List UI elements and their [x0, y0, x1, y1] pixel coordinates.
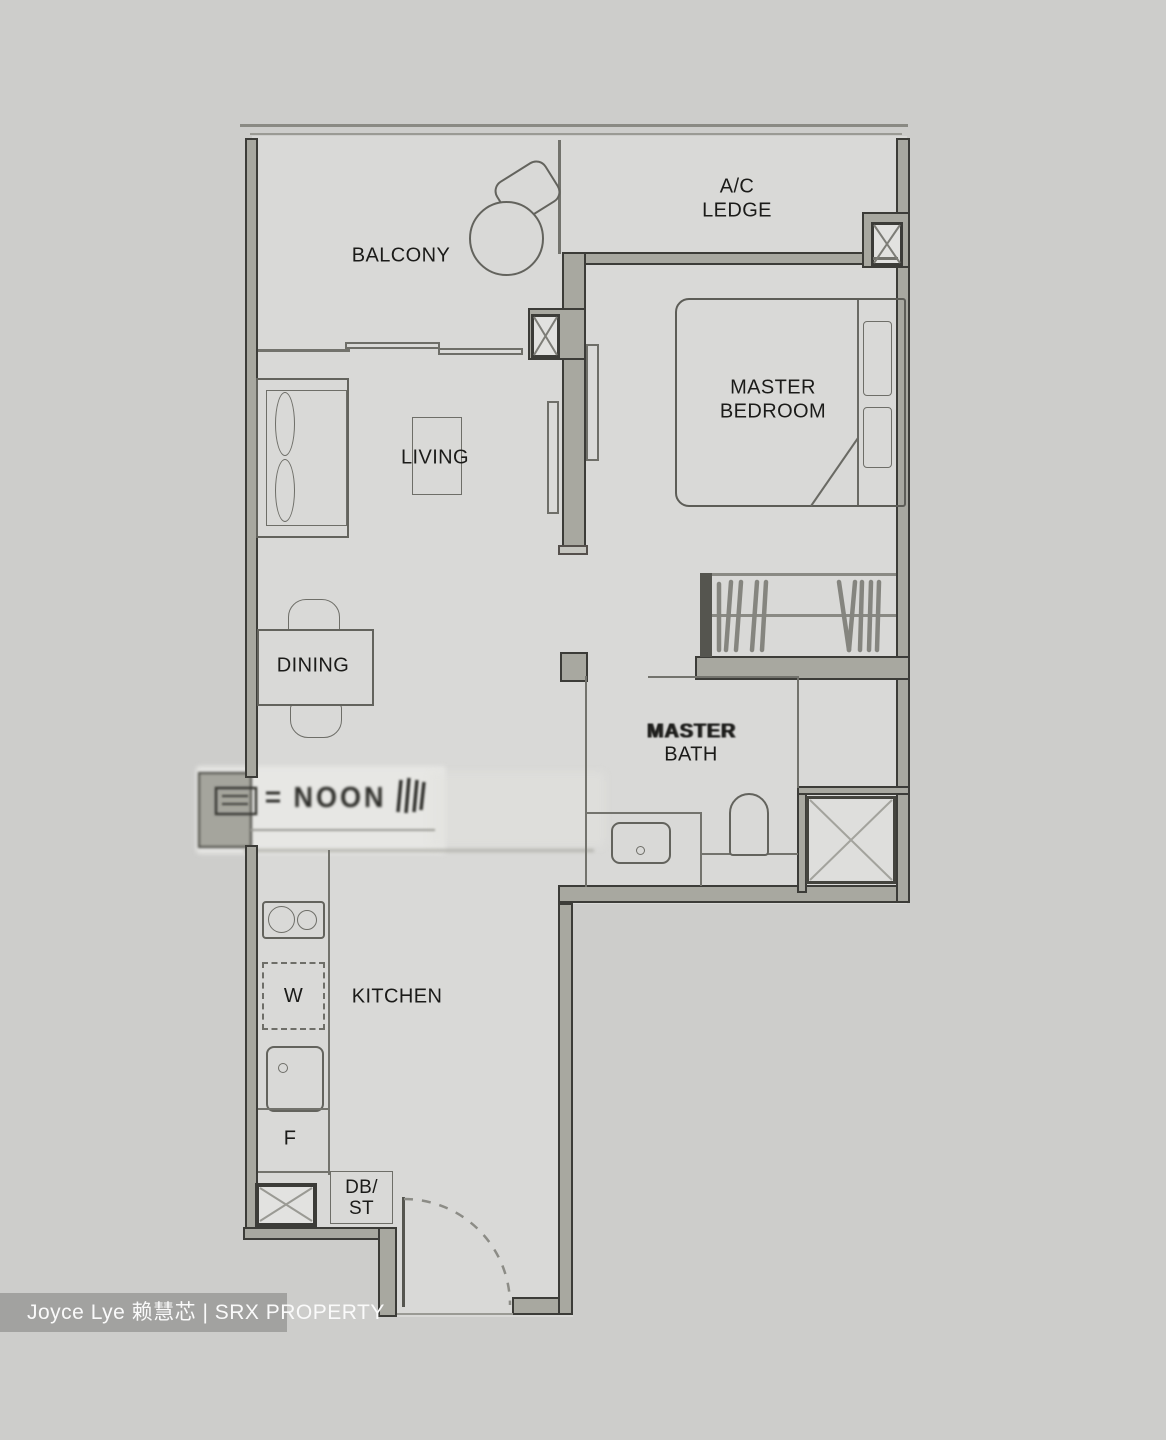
dining-label: DINING	[277, 655, 349, 678]
entry-threshold	[397, 1313, 513, 1315]
balcony-slider-1	[345, 342, 440, 349]
top-edge-outer	[240, 124, 908, 127]
ledge-wall-extension	[873, 257, 898, 260]
floor-plan: NOON	[0, 0, 1166, 1440]
bedroom-slider-left	[547, 401, 559, 514]
entry-door-leaf	[402, 1197, 405, 1307]
shaft-box-entry	[255, 1183, 317, 1227]
wardrobe-top-line	[712, 573, 896, 576]
smudge-line-1	[250, 829, 435, 831]
agent-watermark: Joyce Lye 赖慧芯 | SRX PROPERTY	[0, 1293, 287, 1332]
sofa-cushion-1	[275, 392, 295, 456]
vanity-drain	[636, 846, 645, 855]
wall-bedroom-west	[562, 252, 586, 547]
balcony-slider-2	[438, 348, 523, 355]
wall-left-lower	[245, 845, 258, 1240]
fridge-bottom-line	[258, 1171, 329, 1173]
balcony-label: BALCONY	[352, 245, 450, 268]
toilet	[729, 793, 769, 856]
top-edge-inner	[250, 133, 902, 135]
wardrobe-rail	[712, 614, 896, 617]
wall-bath-column	[560, 652, 588, 682]
shower-area	[806, 796, 896, 884]
kitchen-label: KITCHEN	[352, 986, 443, 1009]
pillow-2	[863, 407, 892, 468]
fridge-label: F	[284, 1128, 297, 1151]
db-st-line2: ST	[349, 1198, 374, 1219]
wall-bottom-left	[243, 1227, 380, 1240]
wall-ledge-bottom	[563, 252, 875, 265]
vanity-sink	[611, 822, 671, 864]
wall-shower-top	[797, 786, 910, 795]
bath-counter-line	[585, 812, 702, 814]
wall-foot	[558, 545, 588, 555]
washer: W	[262, 962, 325, 1030]
bath-right-line	[797, 676, 799, 788]
shaft-box-balcony	[531, 314, 560, 358]
smudged-text: NOON	[294, 782, 387, 815]
dining-chair-top	[288, 599, 340, 633]
living-label: LIVING	[401, 447, 469, 470]
burner-small	[297, 910, 317, 930]
ac-ledge-label-line1: A/C	[720, 176, 755, 199]
bed-head-line	[857, 300, 859, 505]
bedroom-slider-right	[586, 344, 599, 461]
master-bath-label-line1: MASTER	[646, 721, 735, 744]
pillow-1	[863, 321, 892, 396]
master-bedroom-label-line2: BEDROOM	[720, 401, 826, 424]
wardrobe-left-bar	[700, 573, 712, 657]
burner-large	[268, 906, 295, 933]
sofa-cushion-2	[275, 459, 295, 522]
smudge-line-2	[244, 849, 594, 852]
balcony-table	[469, 201, 544, 276]
ac-ledge-label-line2: LEDGE	[702, 200, 772, 223]
dining-chair-bottom	[290, 704, 342, 738]
wall-bath-bottom	[558, 885, 910, 903]
washer-label: W	[284, 985, 303, 1008]
bath-top-line	[648, 676, 798, 678]
master-bath-label-line2: BATH	[664, 744, 717, 767]
kitchen-sink	[266, 1046, 324, 1112]
bath-counter-end	[700, 812, 702, 886]
fridge-top-line	[258, 1108, 329, 1110]
smudge-band-faint	[430, 772, 605, 847]
balcony-sill	[258, 349, 350, 352]
wall-corridor-right	[558, 903, 573, 1315]
kitchen-counter-edge	[328, 850, 330, 1175]
sink-drain	[278, 1063, 288, 1073]
smudged-wall-bump	[198, 772, 252, 848]
master-bedroom-label-line1: MASTER	[730, 377, 816, 400]
db-st-line1: DB/	[345, 1177, 378, 1198]
db-st-box: DB/ ST	[330, 1171, 393, 1224]
bath-left-line	[585, 676, 587, 887]
